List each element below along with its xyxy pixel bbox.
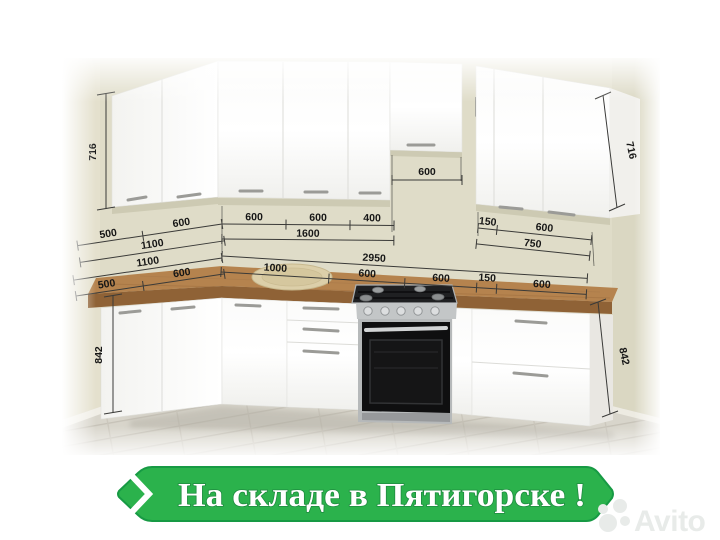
burner [373,287,384,293]
edge-fade-top [62,56,662,102]
oven-handle [366,328,446,330]
dim-label: 600 [309,212,327,224]
burner [415,286,426,292]
dim-label: 400 [363,212,381,224]
avito-text: Avito [634,505,706,538]
dim-label: 600 [533,278,551,291]
stock-banner: На складе в Пятигорске ! [118,467,613,521]
dim-label: 150 [478,272,496,285]
right-drawer-base-cabinet [472,309,613,426]
dim-label: 1000 [263,262,287,275]
dim-label: 600 [358,267,376,280]
dim-label-hood-600: 600 [418,166,436,178]
dim-label: 150 [478,215,497,229]
oven-glass [370,340,442,404]
filler-base-cabinet [452,308,472,415]
kitchen-scene: 716 842 716 842 600 [62,56,662,460]
corner-base-cabinet [222,298,287,407]
dim-label: 600 [535,221,554,235]
drawer-base-cabinet [287,301,363,410]
edge-fade-right [634,56,662,458]
kitchen-listing-image: 716 842 716 842 600 [0,0,720,540]
base-cabinets-left-wall [101,298,222,419]
edge-fade-bottom [62,426,662,460]
banner-text: На складе в Пятигорске ! [178,477,586,514]
dim-label: 1600 [296,228,320,240]
edge-fade-left [62,56,96,458]
dim-label: 2950 [362,252,386,265]
stove [352,285,457,424]
dim-label: 600 [245,211,263,223]
burner [360,295,372,301]
dim-label: 750 [523,237,542,251]
burner [432,294,444,300]
dim-label: 600 [432,272,450,285]
